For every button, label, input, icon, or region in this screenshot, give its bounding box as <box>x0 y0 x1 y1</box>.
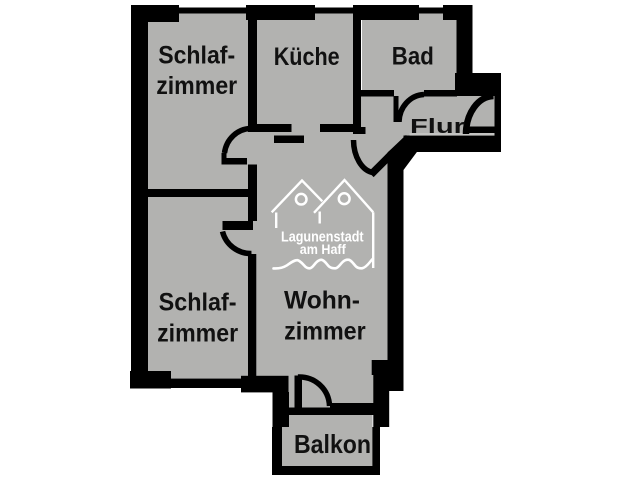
svg-text:Schlaf-: Schlaf- <box>158 42 235 70</box>
svg-text:zimmer: zimmer <box>157 320 238 348</box>
svg-text:zimmer: zimmer <box>156 72 237 100</box>
svg-text:zimmer: zimmer <box>284 318 366 346</box>
svg-text:Wohn-: Wohn- <box>284 287 360 315</box>
svg-text:Bad: Bad <box>392 43 434 71</box>
svg-text:Flur: Flur <box>410 116 465 138</box>
svg-text:Schlaf-: Schlaf- <box>159 289 237 317</box>
svg-text:Balkon: Balkon <box>294 429 371 459</box>
svg-text:am Haff: am Haff <box>300 241 346 257</box>
svg-text:Küche: Küche <box>274 43 340 71</box>
